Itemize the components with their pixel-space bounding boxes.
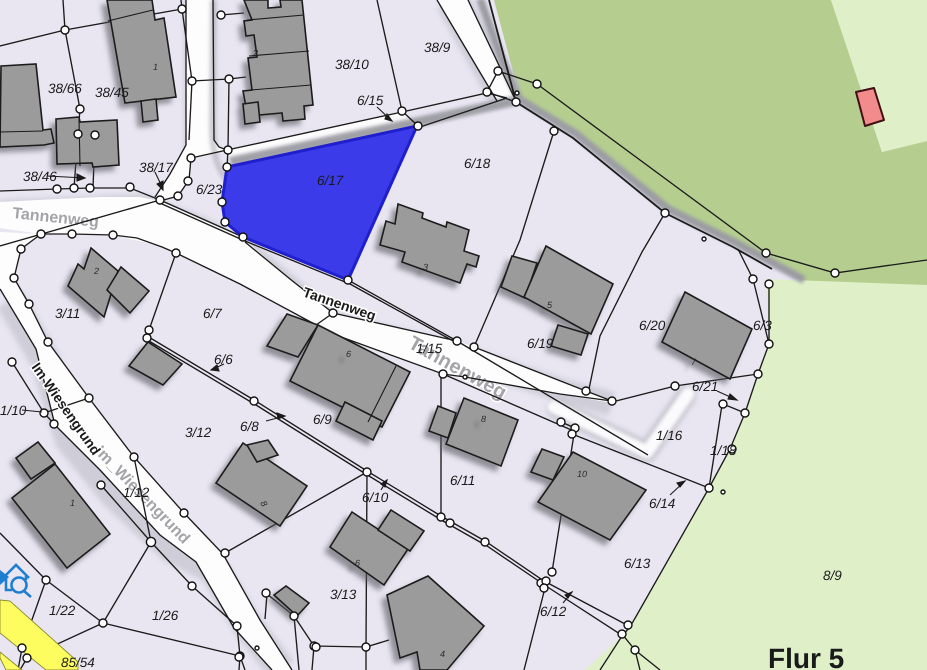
svg-text:Flur 5: Flur 5 [768,643,844,670]
svg-text:6/13: 6/13 [624,556,651,571]
svg-text:6/11: 6/11 [450,473,475,488]
svg-text:38/45: 38/45 [95,85,129,100]
svg-text:6/18: 6/18 [464,156,491,171]
svg-text:1/18: 1/18 [710,443,737,458]
svg-text:6/8: 6/8 [240,419,259,434]
svg-text:1/12: 1/12 [123,485,150,500]
svg-text:6/7: 6/7 [203,306,222,321]
svg-text:38/9: 38/9 [424,40,451,55]
svg-text:3/13: 3/13 [330,587,357,602]
svg-text:4: 4 [440,649,445,659]
svg-text:6/10: 6/10 [362,490,389,505]
svg-text:6: 6 [339,355,344,365]
svg-text:85/54: 85/54 [61,655,95,670]
svg-text:38/17: 38/17 [139,160,173,175]
svg-text:6/17: 6/17 [317,173,344,188]
svg-text:6/12: 6/12 [540,604,567,619]
svg-text:6: 6 [355,558,360,568]
svg-text:10: 10 [577,469,587,479]
svg-text:1: 1 [153,62,158,72]
svg-text:1/16: 1/16 [656,428,683,443]
svg-text:6: 6 [346,349,351,359]
svg-text:6/21: 6/21 [692,379,718,394]
svg-text:8/9: 8/9 [823,568,842,583]
svg-text:2: 2 [93,266,99,276]
svg-text:6/23: 6/23 [196,182,223,197]
svg-text:3/11: 3/11 [55,306,80,321]
svg-text:6/19: 6/19 [527,336,554,351]
svg-text:6/15: 6/15 [357,93,384,108]
svg-text:6/3: 6/3 [753,318,772,333]
svg-text:3: 3 [416,268,421,278]
svg-text:3/12: 3/12 [185,425,212,440]
svg-text:1/26: 1/26 [152,608,179,623]
svg-text:38/66: 38/66 [48,81,82,96]
svg-text:1/15: 1/15 [416,341,443,356]
svg-text:1: 1 [70,498,75,508]
svg-text:38/10: 38/10 [335,57,369,72]
svg-text:3: 3 [423,262,428,272]
svg-text:1/22: 1/22 [49,603,76,618]
svg-text:2: 2 [252,48,258,58]
svg-text:6/9: 6/9 [313,412,332,427]
svg-text:8: 8 [481,414,486,424]
svg-text:6: 6 [348,564,353,574]
svg-text:8: 8 [474,420,479,430]
svg-text:6/20: 6/20 [639,318,666,333]
svg-text:6/14: 6/14 [649,496,675,511]
